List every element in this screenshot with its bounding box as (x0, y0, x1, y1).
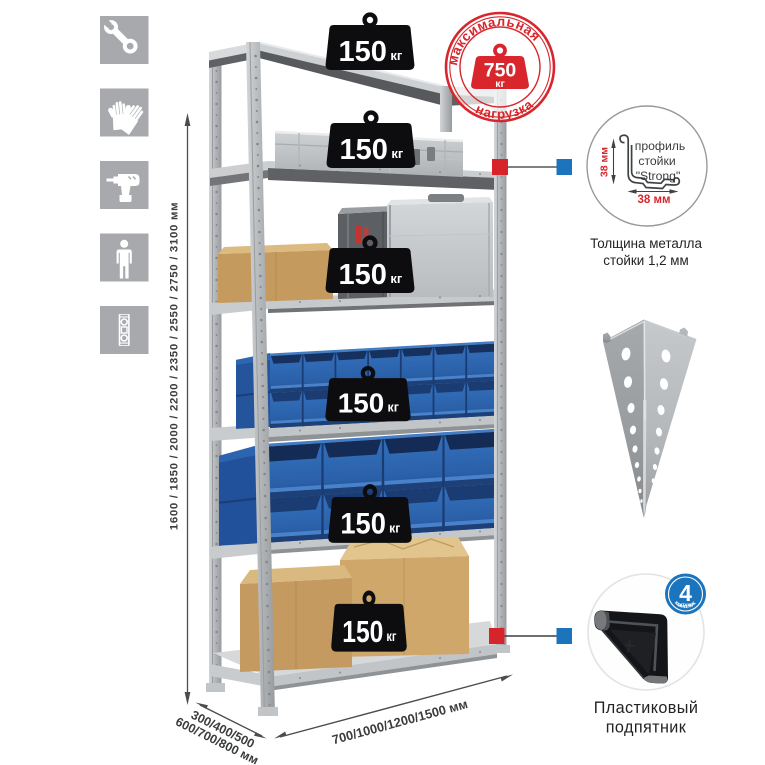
svg-text:"Strong": "Strong" (636, 169, 681, 183)
svg-text:кг: кг (495, 78, 505, 90)
svg-text:подпятник: подпятник (606, 719, 687, 737)
svg-text:1600 / 1850 / 2000 / 2200 / 23: 1600 / 1850 / 2000 / 2200 / 2350 / 2550 … (169, 202, 181, 530)
svg-text:Пластиковый: Пластиковый (594, 699, 699, 717)
svg-text:профиль: профиль (635, 139, 685, 153)
svg-text:Толщина металла: Толщина металла (590, 236, 702, 251)
svg-text:38 мм: 38 мм (599, 147, 611, 177)
svg-text:38 мм: 38 мм (637, 194, 670, 206)
svg-text:стойки 1,2 мм: стойки 1,2 мм (603, 253, 688, 268)
svg-text:стойки: стойки (638, 154, 675, 168)
